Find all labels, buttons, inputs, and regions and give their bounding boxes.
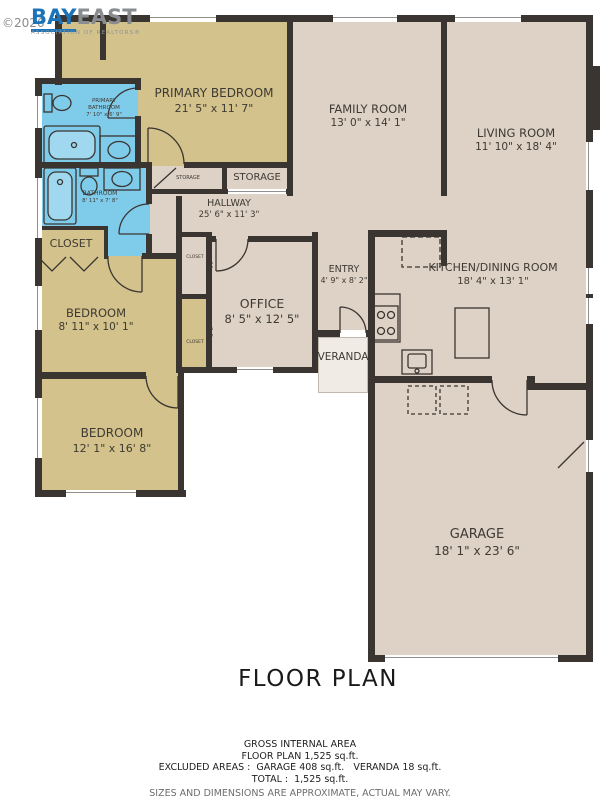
primary-bathroom-floor [42,82,138,166]
room-name: CLOSET [50,237,93,251]
wall-family-living [441,22,447,196]
label-entry: ENTRY 4' 9" x 8' 2" [320,264,367,287]
label-closet-a: CLOSET [186,255,203,261]
wall-bedroom1-top [104,253,108,259]
label-closet-b: CLOSET [186,340,203,346]
wall-bedroom2-top [35,372,146,379]
garage-floor [368,383,586,662]
wall-corridor [146,162,152,204]
wall-pbath-right [135,78,141,90]
room-name: KITCHEN/DINING ROOM [428,261,557,275]
room-dims: 8' 11" x 7' 8" [82,198,118,205]
entry-door-opening [340,330,366,337]
hallway-floor [150,232,176,253]
room-dims: 13' 0" x 14' 1" [329,117,407,131]
brand-bay: BAY [31,5,76,32]
room-name: BEDROOM [58,306,133,321]
veranda-floor [318,337,368,393]
room-dims: 18' 4" x 13' 1" [428,275,557,288]
brand-subtitle: ASSOCIATION OF REALTORS® [31,31,141,37]
floor-plan-area-line: FLOOR PLAN 1,525 sq.ft. [0,751,600,763]
room-dims: 25' 6" x 11' 3" [199,210,260,221]
wall-step [35,78,141,84]
room-dims: 21' 5" x 11' 7" [154,102,273,116]
room-name: BEDROOM [73,426,152,442]
wall-closet-a-top [182,232,206,237]
wall-entry-bottom [366,330,375,337]
wall-right [586,15,593,662]
label-bathroom: BATHROOM 8' 11" x 7' 8" [82,190,118,205]
gross-internal-area-line: GROSS INTERNAL AREA [0,739,600,751]
window [35,96,42,128]
label-family-room: FAMILY ROOM 13' 0" x 14' 1" [329,102,407,131]
area-summary: GROSS INTERNAL AREA FLOOR PLAN 1,525 sq.… [0,739,600,798]
label-hallway: HALLWAY 25' 6" x 11' 3" [199,198,260,221]
wall-closets-right [206,232,212,373]
wall-entry-bottom [312,330,340,337]
room-name: LIVING ROOM [475,126,557,141]
label-primary-bathroom: PRIMARY BATHROOM 7' 10" x 6' 9" [81,98,127,119]
wall-primary-family [287,22,293,196]
wall-bedroom1-right [176,196,182,373]
label-bedroom-2: BEDROOM 12' 1" x 16' 8" [73,426,152,456]
room-name: GARAGE [434,527,520,544]
plan-title: FLOOR PLAN [238,666,398,692]
wall-office-top [248,236,312,242]
wall-pbath-right [135,116,141,168]
room-dims: 4' 9" x 8' 2" [320,276,367,286]
floor-plan-page: PRIMARY BEDROOM 21' 5" x 11' 7" FAMILY R… [0,0,600,798]
wall-entry-garage-left [368,230,375,662]
room-dims: 7' 10" x 6' 9" [81,112,127,119]
room-name: HALLWAY [199,198,260,210]
chimney-bump [593,66,600,130]
wall-storage-top [184,162,293,168]
label-primary-bedroom: PRIMARY BEDROOM 21' 5" x 11' 7" [154,86,273,116]
total-area-line: TOTAL : 1,525 sq.ft. [0,774,600,786]
wall-closet-divider [182,294,206,299]
brand-logo: BAYEAST ASSOCIATION OF REALTORS® [31,7,141,37]
window [586,142,593,190]
wall-kitchen-bottom [527,376,535,383]
label-kitchen-dining: KITCHEN/DINING ROOM 18' 4" x 13' 1" [428,261,557,288]
wall-storage-bottom [286,189,293,194]
room-name: PRIMARY BATHROOM [81,98,127,112]
room-dims: 8' 11" x 10' 1" [58,321,133,335]
window [35,178,42,238]
room-name: ENTRY [320,264,367,276]
excluded-areas-line: EXCLUDED AREAS : GARAGE 408 sq.ft. VERAN… [0,762,600,774]
garage-door [385,655,558,662]
wall-closet-right [104,226,108,256]
window [35,286,42,330]
room-dims: 8' 5" x 12' 5" [225,312,300,327]
wall-bath-divider [35,162,148,168]
room-name: OFFICE [225,296,300,312]
wall-kitchen-bottom [368,376,492,383]
label-living-room: LIVING ROOM 11' 10" x 18' 4" [475,126,557,155]
wall-bedroom2-right [178,372,184,497]
garage-side-door-opening [586,440,593,472]
window [333,15,397,22]
label-veranda: VERANDA [318,351,369,365]
label-office: OFFICE 8' 5" x 12' 5" [225,296,300,327]
room-name: STORAGE [233,171,281,184]
label-storage: STORAGE [233,171,281,184]
room-name: VERANDA [318,351,369,365]
brand-east: EAST [76,5,136,29]
label-storage-small: STORAGE [176,175,200,182]
wall-storage-bottom [146,189,228,194]
window [35,398,42,458]
room-dims: 18' 1" x 23' 6" [434,544,520,560]
room-name: CLOSET [186,255,203,261]
kitchen-floor [368,230,586,383]
wall-office-top [206,236,216,242]
room-dims: 11' 10" x 18' 4" [475,141,557,155]
hallway-floor [150,192,443,232]
room-name: PRIMARY BEDROOM [154,86,273,102]
window [455,15,521,22]
wall-closet-top [35,226,104,230]
label-garage: GARAGE 18' 1" x 23' 6" [434,527,520,559]
room-name: STORAGE [176,175,200,182]
room-name: CLOSET [186,340,203,346]
sliding-door [228,189,286,194]
wall-garage-topright [527,383,593,390]
label-bedroom-1: BEDROOM 8' 11" x 10' 1" [58,306,133,335]
disclaimer-line: SIZES AND DIMENSIONS ARE APPROXIMATE, AC… [0,788,600,798]
wall-kitchen-top [368,230,447,237]
room-name: BATHROOM [82,190,118,198]
window [586,268,593,294]
window [237,367,273,373]
label-closet: CLOSET [50,237,93,251]
window [586,298,593,324]
window [66,490,136,497]
closet-a-floor [182,232,206,294]
window [150,15,216,22]
room-dims: 12' 1" x 16' 8" [73,442,152,456]
room-name: FAMILY ROOM [329,102,407,117]
closet-b-floor [182,296,206,367]
